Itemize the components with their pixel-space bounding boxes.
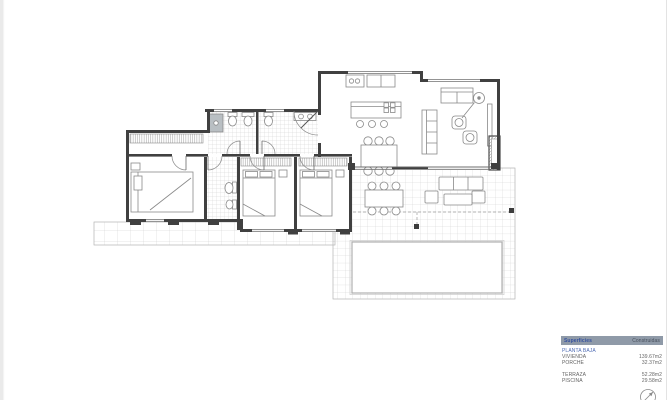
downlight-icon (509, 208, 514, 213)
surface-table-header: Superficies Construidas (561, 336, 663, 345)
window (146, 219, 164, 221)
table-row: PISCINA 29.58m2 (562, 378, 662, 384)
window (252, 229, 284, 231)
bar-stool (357, 121, 364, 128)
window (266, 109, 284, 111)
row-value: 32.37m2 (642, 360, 662, 366)
bedroom-2-wardrobe (241, 158, 291, 166)
surface-table: Superficies Construidas PLANTA BAJA VIVI… (561, 336, 663, 384)
bar-stool (381, 121, 388, 128)
row-label: PISCINA (562, 378, 583, 384)
north-arrow-icon (641, 390, 656, 400)
row-label: PORCHE (562, 360, 584, 366)
sofa (422, 110, 437, 154)
loveseat (441, 88, 473, 103)
kitchen-counter (346, 75, 395, 87)
window (348, 71, 412, 73)
corridor-wardrobe (130, 134, 203, 143)
drawing-sheet: Superficies Construidas PLANTA BAJA VIVI… (0, 0, 670, 400)
window (214, 109, 232, 111)
bar-stool (369, 121, 376, 128)
window (302, 229, 336, 231)
surface-table-body: PLANTA BAJA VIVIENDA 139.67m2 PORCHE 32.… (561, 345, 663, 384)
pool (350, 241, 504, 295)
window (428, 79, 480, 81)
surface-table-col2-header: Construidas (632, 338, 660, 344)
bedroom-3-wardrobe (299, 158, 347, 166)
outdoor-dining-table (365, 182, 403, 215)
downlight-icon (414, 224, 419, 229)
row-value: 29.58m2 (642, 378, 662, 384)
surface-table-col1-header: Superficies (564, 338, 592, 344)
